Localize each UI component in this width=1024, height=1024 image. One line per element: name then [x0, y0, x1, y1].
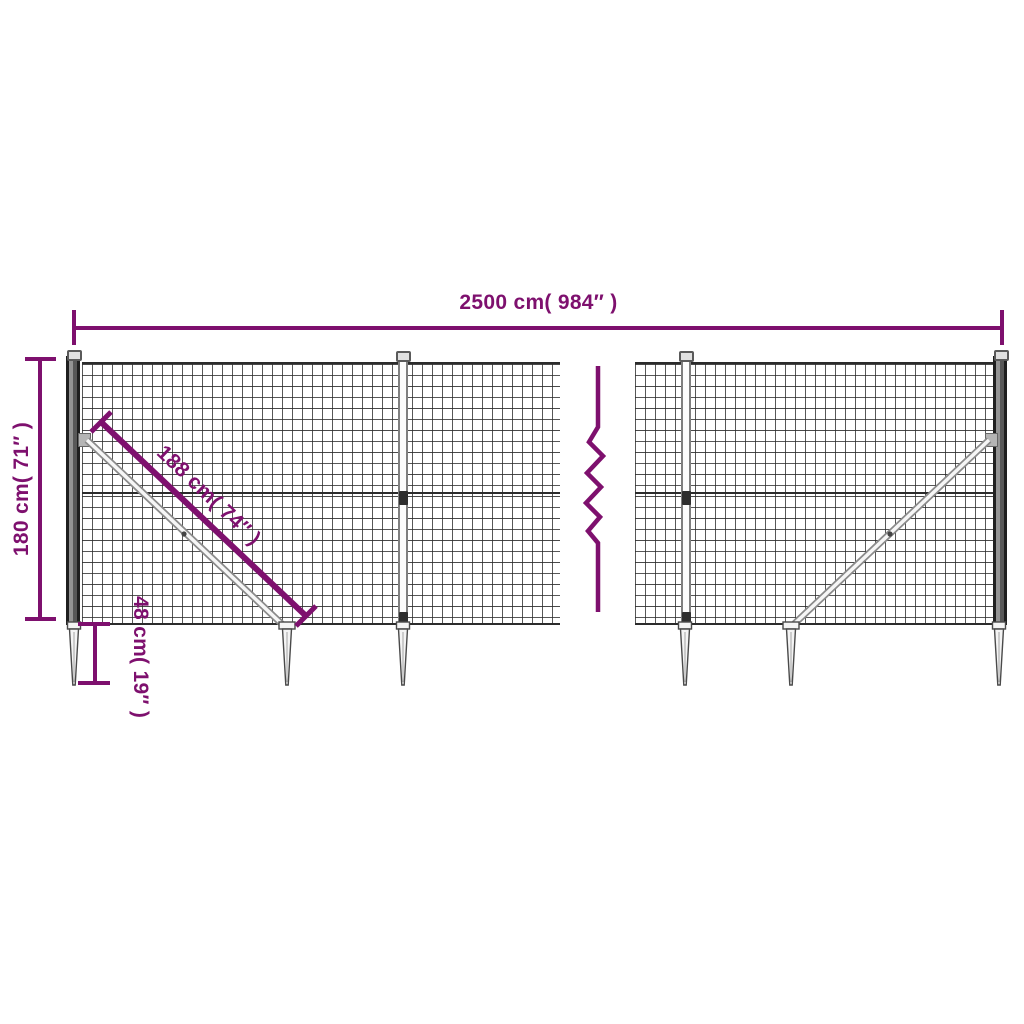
- width-dimension-tick-left: [72, 310, 76, 345]
- product-dimension-diagram: 2500 cm( 984″ ) 180 cm( 71″ ) 188 cm( 74…: [0, 0, 1024, 1024]
- height-dimension-label: 180 cm( 71″ ): [10, 358, 34, 620]
- ground-spike: [68, 622, 81, 685]
- ground-spike: [679, 622, 692, 685]
- spike-depth-tick-bottom: [78, 681, 110, 685]
- width-dimension-label: 2500 cm( 984″ ): [75, 291, 1002, 315]
- ground-spike: [993, 622, 1006, 685]
- ground-spike: [397, 622, 410, 685]
- width-dimension-line: [75, 326, 1002, 330]
- brace-bolt: [181, 531, 186, 536]
- diagram-vector-layer: [0, 0, 1024, 1024]
- brace-bolt: [887, 531, 892, 536]
- ground-spikes: [68, 622, 1006, 685]
- brace-dimension-line: [91, 412, 316, 626]
- ground-spike-brace-anchor: [279, 622, 295, 685]
- height-dimension-line: [38, 359, 42, 621]
- spike-depth-dimension-label: 48 cm( 19″ ): [128, 596, 152, 718]
- break-zigzag-line: [586, 366, 603, 612]
- spike-depth-dimension-line: [93, 624, 97, 685]
- width-dimension-tick-right: [1000, 310, 1004, 345]
- diagonal-brace-right: [792, 440, 989, 626]
- spike-depth-tick-top: [78, 622, 110, 626]
- ground-spike-brace-anchor: [783, 622, 799, 685]
